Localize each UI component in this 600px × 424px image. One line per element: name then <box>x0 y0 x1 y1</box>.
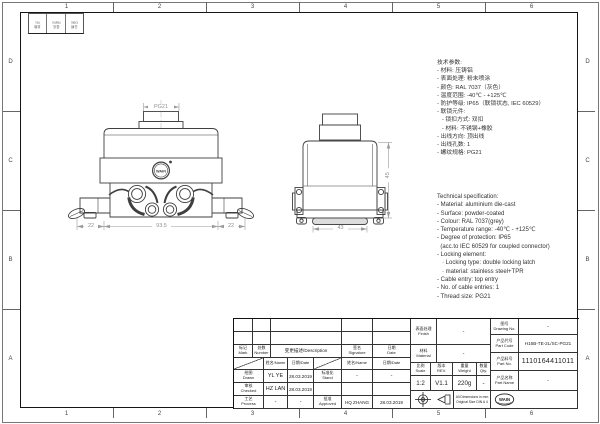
scale-label: 比例 Scale <box>411 363 431 376</box>
rev-label: 版本 REV. <box>431 363 453 376</box>
approved-date: 28.03.2019 <box>373 396 411 409</box>
stand-name: - <box>342 370 373 383</box>
finish-label: 表面处理 Finish <box>411 319 437 345</box>
subheader-date: 日期/Date <box>288 358 314 370</box>
part-name-label: 产品名称 Part Name <box>491 371 519 391</box>
part-no-label: 产品料号 Part No. <box>491 353 519 371</box>
dim-label-93-5: 93.5 <box>152 223 171 230</box>
subheader-name: 姓名/Name <box>342 358 373 370</box>
part-code-value: H16B-TE-2L/SC-PG21 <box>519 335 578 353</box>
checked-date: 28.03.2019 <box>288 383 314 396</box>
rev-header-date: 日期 Date <box>373 345 411 358</box>
stand-label: 标准化 Stand <box>314 370 342 383</box>
scale-value: 1:2 <box>411 376 431 391</box>
front-view-dimensions <box>77 103 245 230</box>
revision-cell <box>253 319 271 332</box>
finish-value: - <box>437 319 491 345</box>
revision-cell <box>342 332 373 345</box>
rev-header-signature: 签名 Signature <box>342 345 373 358</box>
dimensions-note: All Dimensions in mm Original Size DIN A… <box>454 391 491 409</box>
revision-cell <box>373 319 411 332</box>
subheader-name: 姓名/Name <box>264 358 288 370</box>
drawn-date: 28.03.2019 <box>288 370 314 383</box>
part-no-value: 1110164411011 <box>519 353 578 371</box>
dim-label-43: 43 <box>333 225 348 232</box>
rev-header-number: 处数 Number <box>253 345 271 358</box>
qty-value: - <box>477 376 491 391</box>
revision-cell <box>271 319 342 332</box>
checked-name: HZ LAN <box>264 383 288 396</box>
dim-label-22-right: 22 <box>224 223 238 230</box>
drawn-name: YL YE <box>264 370 288 383</box>
revision-cell <box>373 332 411 345</box>
diagonal-cell <box>314 358 342 370</box>
qty-label: 数量 Qty. <box>477 363 491 376</box>
wain-logo: WAIN <box>494 393 515 406</box>
drawing-no-value: - <box>519 319 578 335</box>
part-code-label: 产品代号 Part Code <box>491 335 519 353</box>
revision-cell <box>234 319 253 332</box>
rev-header-mark: 标记 Mark <box>234 345 253 358</box>
process-date: - <box>288 396 314 409</box>
projection-symbol-cell <box>411 391 454 409</box>
revision-cell <box>271 332 342 345</box>
weight-value: 220g <box>453 376 477 391</box>
side-view <box>293 114 388 225</box>
process-name: - <box>264 396 288 409</box>
drawing-sheet: 1 2 3 4 5 6 1 2 3 4 5 6 D C B A D C B A … <box>0 0 600 424</box>
company-names: 厦门唯恩电气有限公司 XIAMEN WAIN ELECTRICAL CO.LTD <box>517 391 575 409</box>
rev-header-description: 变更描述/Description <box>271 345 342 358</box>
material-value: - <box>437 345 491 363</box>
drawn-label: 绘图 Drawn <box>234 370 264 383</box>
diagonal-cell <box>234 358 264 370</box>
wain-badge: WAIN <box>153 161 172 179</box>
company-cell: WAIN 厦门唯恩电气有限公司 XIAMEN WAIN ELECTRICAL C… <box>491 391 578 409</box>
revision-cell <box>253 332 271 345</box>
weight-label: 重量 Weight <box>453 363 477 376</box>
first-angle-projection-icon <box>412 391 453 408</box>
revision-cell <box>234 332 253 345</box>
rev-value: V1.1 <box>431 376 453 391</box>
checked-label: 审核 Checked <box>234 383 264 396</box>
empty-cell <box>342 383 373 396</box>
spec-text-english: Technical specification: - Material: alu… <box>437 193 550 301</box>
wain-badge-text: WAIN <box>156 169 166 173</box>
dim-label-45: 45 <box>385 168 392 182</box>
revision-cell <box>342 319 373 332</box>
wain-logo-text: WAIN <box>499 397 510 402</box>
company-name-cn: 厦门唯恩电气有限公司 <box>517 391 575 392</box>
approved-label: 批准 Approved <box>314 396 342 409</box>
empty-cell <box>314 383 342 396</box>
material-label: 材料 Material <box>411 345 437 363</box>
title-block: 标记 Mark 处数 Number 变更描述/Description 签名 Si… <box>233 318 579 409</box>
drawing-no-label: 图号 Drawing No. <box>491 319 519 335</box>
part-name-value: - <box>519 371 578 391</box>
dim-label-22-left: 22 <box>84 223 98 230</box>
empty-cell <box>373 383 411 396</box>
front-view: WAIN <box>67 100 255 221</box>
stand-date: - <box>373 370 411 383</box>
spec-text-chinese: 技术参数: - 材料: 压铸铝 - 表面处理: 粉末喷涂 - 颜色: RAL 7… <box>437 59 544 157</box>
dim-label-thread: PG21 <box>148 104 174 111</box>
process-label: 工艺 Process <box>234 396 264 409</box>
subheader-date: 日期/Date <box>373 358 411 370</box>
approved-name: HQ ZHANG <box>342 396 373 409</box>
